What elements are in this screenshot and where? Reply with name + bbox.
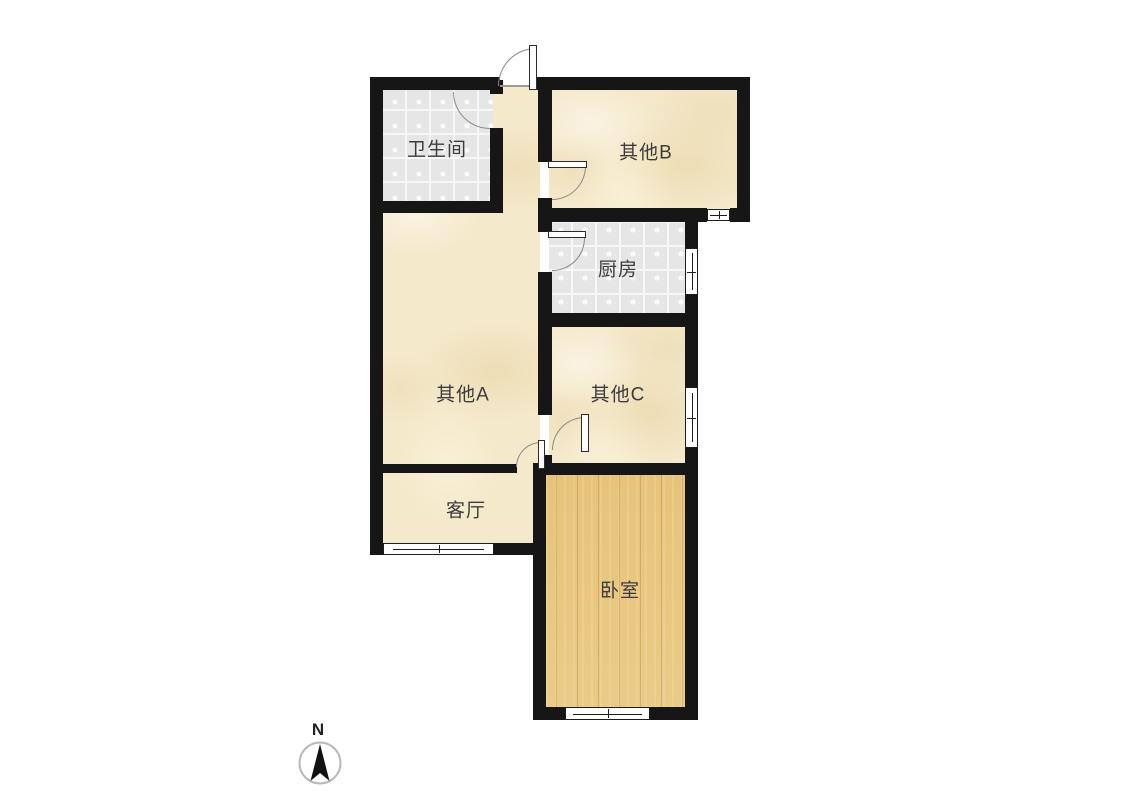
wall-bedroom-bottom-left bbox=[533, 707, 565, 720]
wall-right-mid-1 bbox=[685, 208, 698, 248]
room-label-bathroom: 卫生间 bbox=[407, 135, 467, 162]
room-label-other-b: 其他B bbox=[619, 138, 673, 165]
window-bedroom bbox=[565, 707, 650, 720]
room-label-other-c: 其他C bbox=[591, 380, 646, 407]
wall-top-right bbox=[537, 77, 750, 90]
wall-top-left bbox=[370, 77, 500, 90]
wall-left-outer bbox=[370, 77, 383, 555]
wall-living-bottom-corner bbox=[494, 543, 540, 555]
other-b-door-leaf bbox=[548, 161, 587, 168]
wall-central-2 bbox=[538, 198, 552, 232]
wall-otherb-bottom-corner bbox=[730, 208, 750, 222]
north-arrow-icon bbox=[296, 738, 344, 788]
floorplan-canvas: 卫生间 其他B 厨房 其他A 其他C 客厅 卧室 N bbox=[0, 0, 1125, 800]
wall-central-3 bbox=[538, 272, 552, 415]
wall-otherb-bottom bbox=[538, 208, 707, 222]
wall-kitchen-bottom bbox=[538, 313, 698, 327]
wall-bathroom-bottom bbox=[370, 201, 503, 213]
wall-divider-a-living bbox=[370, 464, 517, 473]
other-c-door-leaf bbox=[581, 414, 589, 452]
wall-bedroom-bottom-right bbox=[650, 707, 698, 720]
wall-bedroom-top bbox=[533, 463, 698, 475]
window-kitchen bbox=[685, 248, 698, 295]
window-other-c bbox=[685, 387, 698, 448]
room-label-kitchen: 厨房 bbox=[598, 255, 638, 282]
room-label-living: 客厅 bbox=[446, 496, 486, 523]
room-label-other-a: 其他A bbox=[436, 380, 490, 407]
room-label-bedroom: 卧室 bbox=[600, 576, 640, 603]
wall-right-mid-2 bbox=[685, 295, 698, 387]
wall-central-1 bbox=[538, 88, 552, 162]
compass-north-label: N bbox=[312, 720, 324, 740]
wall-bedroom-left bbox=[533, 470, 546, 720]
wall-right-upper bbox=[737, 77, 750, 222]
window-living-room bbox=[383, 543, 494, 555]
entrance-door-leaf bbox=[529, 45, 537, 90]
wall-right-lower bbox=[685, 448, 698, 720]
living-room-door-leaf bbox=[538, 440, 545, 469]
window-other-b bbox=[707, 209, 730, 221]
kitchen-door-leaf bbox=[548, 231, 586, 238]
